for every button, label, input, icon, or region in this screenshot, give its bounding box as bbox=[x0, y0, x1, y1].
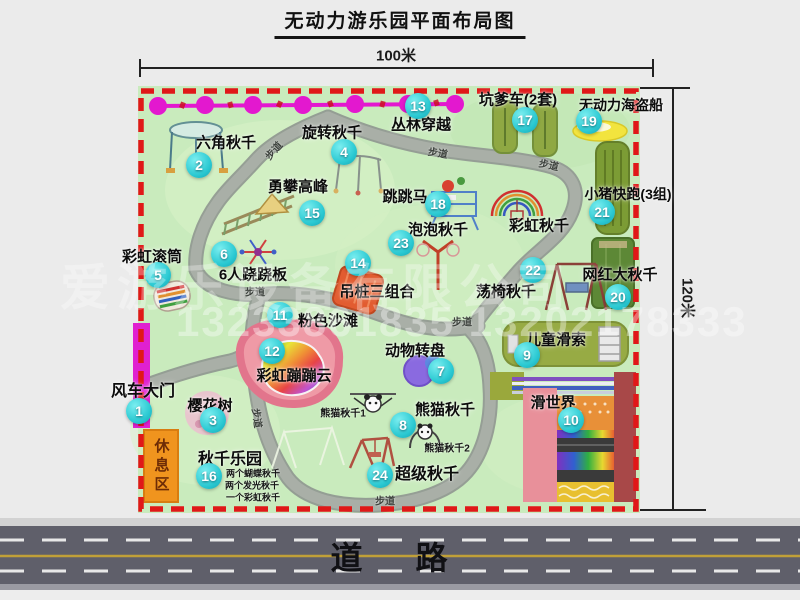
width-dimension-label: 100米 bbox=[376, 45, 416, 66]
walkway-sign: 步道 bbox=[427, 143, 449, 161]
attraction-badge-21: 21 bbox=[589, 199, 615, 225]
page-title: 无动力游乐园平面布局图 bbox=[274, 6, 525, 39]
sub-label: 一个彩虹秋千 bbox=[226, 491, 280, 504]
attraction-badge-22: 22 bbox=[520, 257, 546, 283]
attraction-badge-16: 16 bbox=[196, 463, 222, 489]
attraction-label-11: 粉色沙滩 bbox=[298, 310, 358, 331]
attraction-badge-1: 1 bbox=[126, 398, 152, 424]
attraction-badge-15: 15 bbox=[299, 200, 325, 226]
attraction-badge-12: 12 bbox=[259, 338, 285, 364]
attraction-badge-23: 23 bbox=[388, 230, 414, 256]
attraction-badge-7: 7 bbox=[428, 358, 454, 384]
walkway-sign: 步道 bbox=[245, 284, 265, 299]
walkway-sign: 步道 bbox=[452, 314, 472, 329]
walkway-sign: 步道 bbox=[249, 407, 267, 429]
attraction-badge-20: 20 bbox=[605, 284, 631, 310]
attraction-label-4: 旋转秋千 bbox=[302, 122, 362, 143]
attraction-badge-17: 17 bbox=[512, 107, 538, 133]
attraction-label: 彩虹秋千 bbox=[509, 215, 569, 236]
attraction-label-1: 风车大门 bbox=[111, 377, 175, 401]
rest-area-label: 休息区 bbox=[144, 431, 178, 501]
attraction-label-20: 网红大秋千 bbox=[582, 264, 657, 285]
attraction-badge-4: 4 bbox=[331, 139, 357, 165]
attraction-label-15: 勇攀高峰 bbox=[268, 176, 328, 197]
sub-label: 熊猫秋千1 bbox=[320, 405, 366, 420]
attraction-badge-11: 11 bbox=[267, 302, 293, 328]
attraction-badge-18: 18 bbox=[425, 191, 451, 217]
attraction-badge-8: 8 bbox=[390, 412, 416, 438]
attraction-badge-24: 24 bbox=[367, 462, 393, 488]
attraction-label-7: 动物转盘 bbox=[385, 340, 445, 361]
attraction-label-2: 六角秋千 bbox=[196, 132, 256, 153]
attraction-badge-19: 19 bbox=[576, 108, 602, 134]
attraction-badge-5: 5 bbox=[145, 262, 171, 288]
height-dimension-label: 120米 bbox=[678, 278, 699, 318]
attraction-label-6: 6人跷跷板 bbox=[219, 264, 287, 285]
attraction-label-12: 彩虹蹦蹦云 bbox=[256, 365, 331, 386]
park-layout-poster: 无动力游乐园平面布局图 100米 120米 风车大门1六角秋千2樱花树3旋转秋千… bbox=[0, 0, 800, 600]
attraction-badge-9: 9 bbox=[514, 342, 540, 368]
attraction-label-8: 熊猫秋千 bbox=[415, 399, 475, 420]
attraction-label-23: 泡泡秋千 bbox=[408, 219, 468, 240]
attraction-badge-13: 13 bbox=[405, 93, 431, 119]
attraction-label-18: 跳跳马 bbox=[382, 186, 427, 207]
attraction-label-24: 超级秋千 bbox=[395, 460, 459, 484]
sub-label: 熊猫秋千2 bbox=[424, 440, 470, 455]
road-label: 道 路 bbox=[331, 533, 470, 579]
attraction-label-14: 吊桩三组合 bbox=[339, 281, 414, 302]
attraction-label-17: 坑爹车(2套) bbox=[479, 89, 557, 110]
walkway-sign: 步道 bbox=[375, 493, 395, 508]
attraction-badge-3: 3 bbox=[200, 407, 226, 433]
attraction-badge-10: 10 bbox=[558, 407, 584, 433]
attraction-badge-2: 2 bbox=[186, 152, 212, 178]
attraction-label-22: 荡椅秋千 bbox=[476, 281, 536, 302]
attraction-badge-6: 6 bbox=[211, 241, 237, 267]
attraction-badge-14: 14 bbox=[345, 250, 371, 276]
